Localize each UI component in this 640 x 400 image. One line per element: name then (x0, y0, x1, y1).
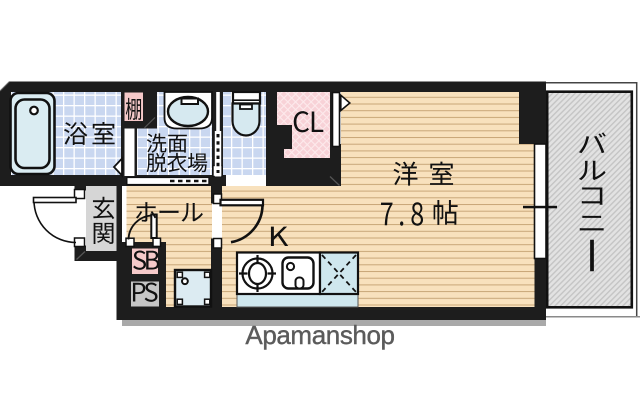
svg-text:Apamanshop: Apamanshop (245, 320, 394, 350)
